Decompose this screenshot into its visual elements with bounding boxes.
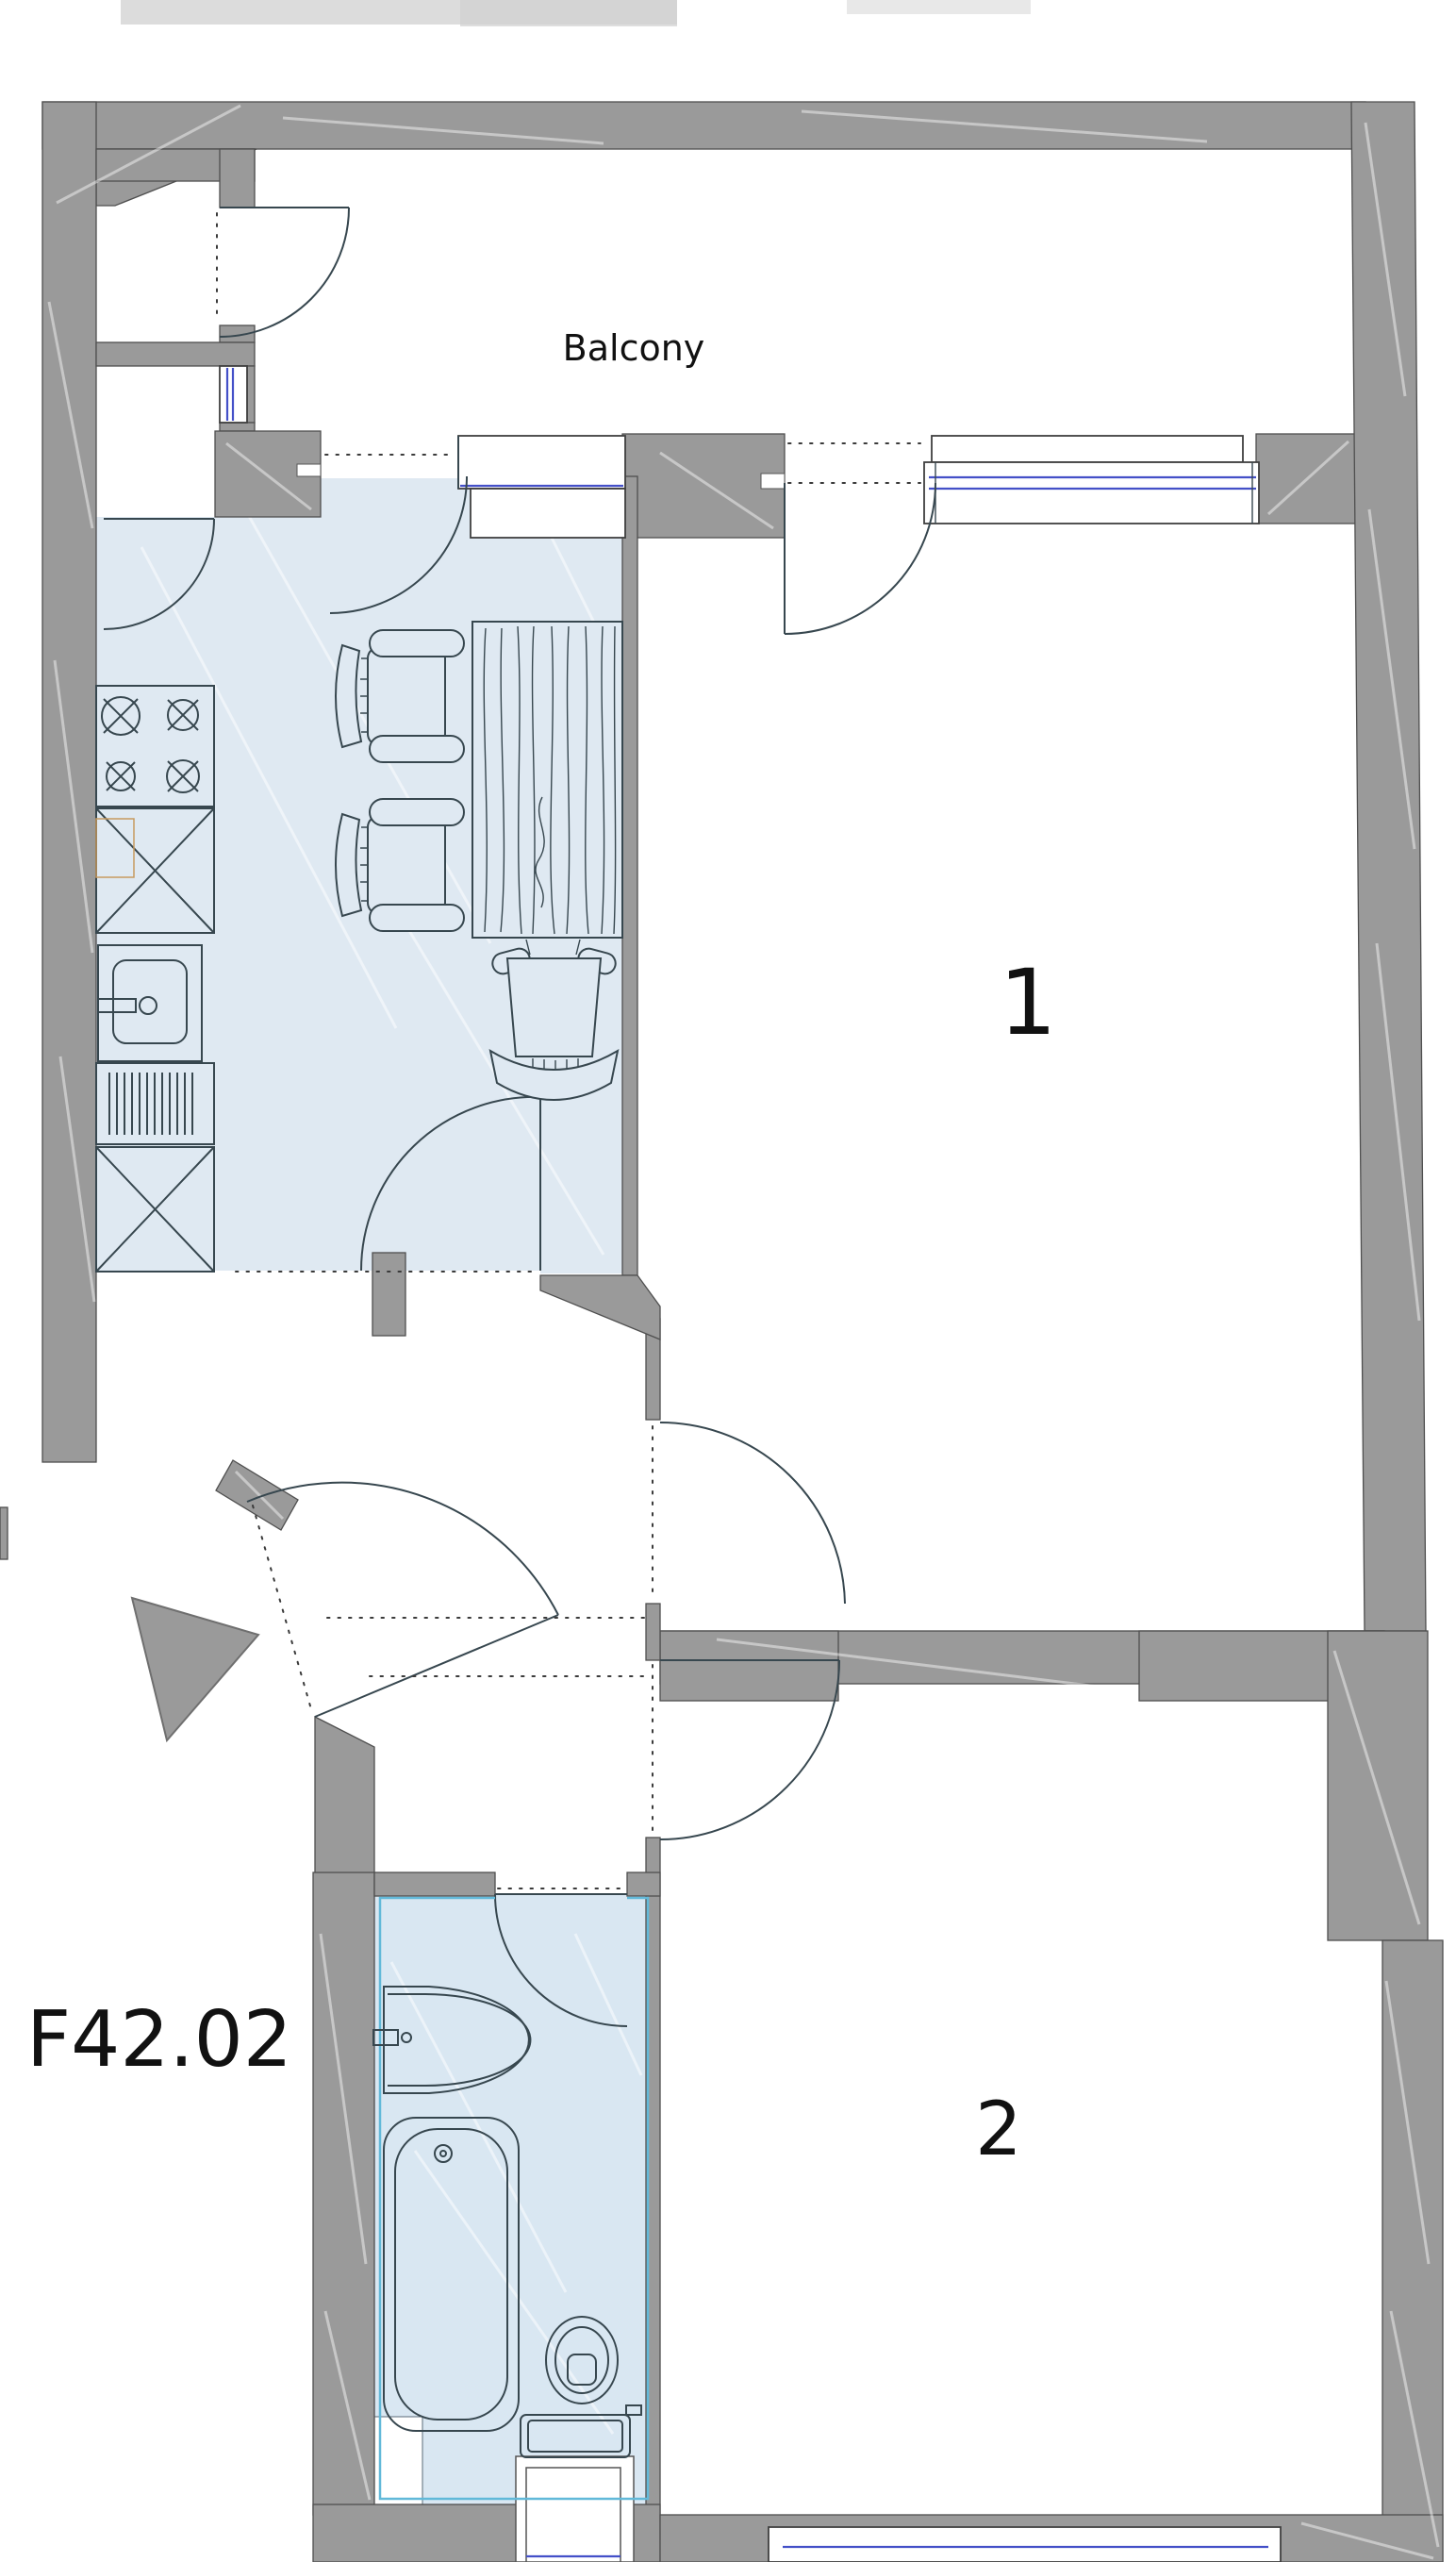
artifact-strip [460,0,677,26]
room1-window-sill [932,436,1243,462]
wall-balcony-south-left [622,434,785,538]
wall-right [1351,102,1426,1631]
chair [336,630,464,762]
storage-window [220,366,247,423]
kitchen-window-sill [471,489,625,538]
entrance-door [247,1483,558,1717]
room1-balcony-door [785,483,935,634]
wall-room1-room2-left [660,1631,838,1701]
door-frame-notch [761,474,785,489]
room2-window [769,2527,1281,2562]
wall-edge-sliver [0,1507,8,1559]
door-frame-notch [297,464,321,476]
wall-kitchen-jog [540,1275,660,1339]
floor-plan-page: Balcony 1 2 F42.02 [0,0,1456,2562]
plan-code-label: F42.02 [26,1995,292,2085]
wall-storage-right-upper [220,149,255,208]
wall-sliver [247,366,255,423]
wall-storage-divider [96,342,255,366]
wall-bathroom-top-left [374,1872,495,1896]
floor-plan-drawing: Balcony 1 2 F42.02 [0,0,1456,2562]
room1-hall-door [660,1422,845,1604]
room-1-label: 1 [999,950,1056,1056]
wall-bathroom-top-right [627,1872,660,1896]
service-shaft [516,2456,634,2562]
balcony-label: Balcony [563,327,705,369]
wall-kitchen-room1 [622,476,637,1275]
wall-top [42,102,1365,149]
entrance-arrow-icon [132,1598,258,1740]
kitchen-window [458,436,625,538]
scan-artifacts [121,0,1031,26]
wall-sliver [220,423,255,431]
wall-bathroom-left [313,1872,374,2515]
storage-balcony-door [220,208,349,337]
wall-right-lower [1382,1940,1443,2562]
artifact-strip [847,0,1031,14]
room1-window [924,436,1259,524]
entrance-frame-upper [216,1460,298,1530]
room-2-label: 2 [975,2088,1022,2172]
wall-hall-room2-stub [646,1604,660,1660]
bathroom-corner-recess [374,2417,422,2504]
dining-table [472,622,622,938]
chair [336,799,464,931]
entrance-frame-lower-wall [315,1717,374,1896]
wall-hall-stub [372,1253,405,1336]
